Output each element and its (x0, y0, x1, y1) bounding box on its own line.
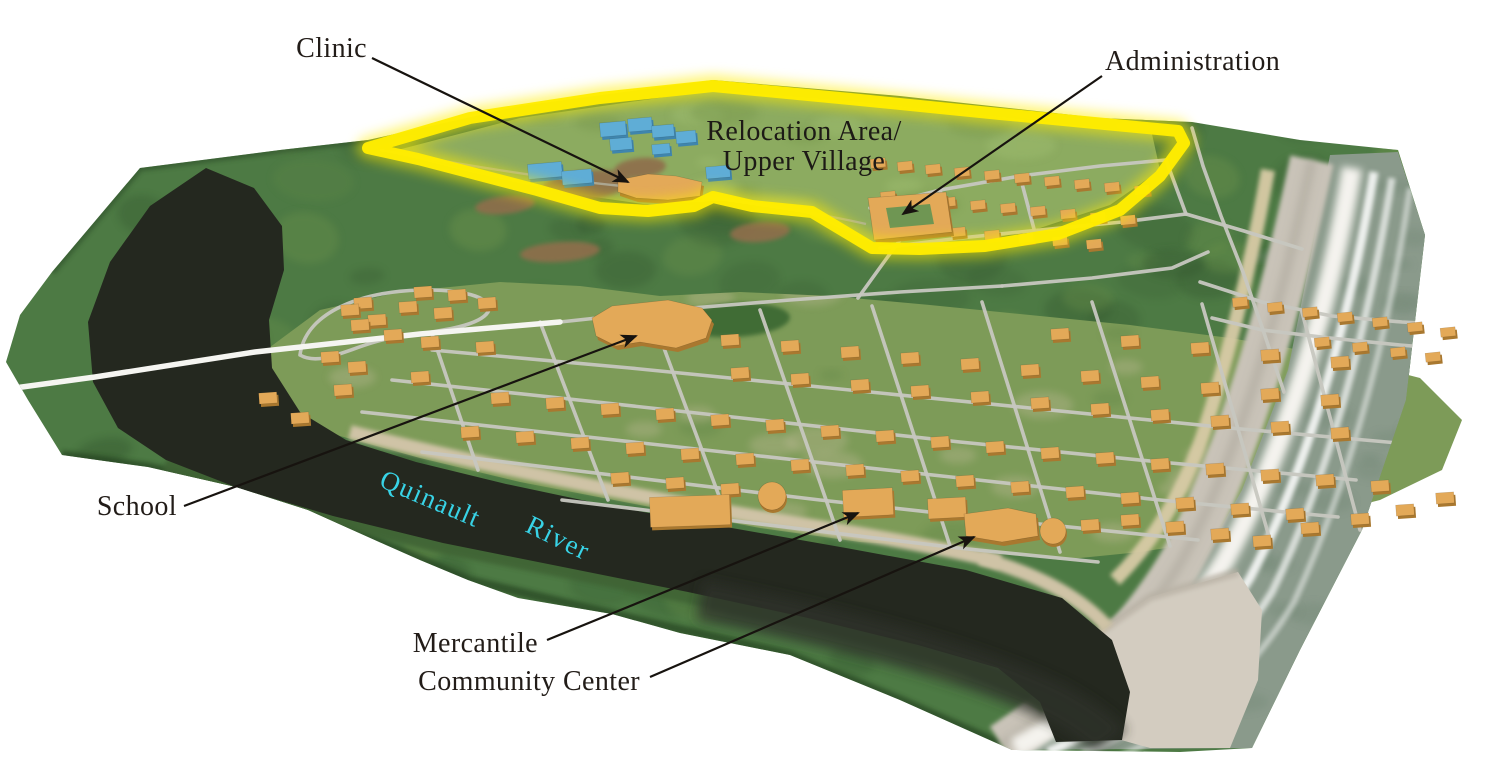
building (711, 414, 731, 429)
building (399, 301, 419, 316)
building (731, 367, 751, 382)
building (876, 430, 896, 445)
building (986, 441, 1006, 456)
building (1271, 421, 1291, 436)
building (791, 459, 811, 474)
building (1396, 504, 1416, 519)
building (897, 161, 915, 175)
building (901, 352, 921, 367)
building (652, 143, 673, 158)
building (1211, 415, 1231, 430)
building (846, 464, 866, 479)
building (1371, 480, 1391, 495)
taholah-3d-terrain-map: Clinic Administration School Mercantile … (0, 0, 1500, 758)
building (656, 408, 676, 423)
building (1261, 388, 1281, 403)
building (1041, 447, 1061, 462)
building (1301, 522, 1321, 537)
building (1081, 370, 1101, 385)
building (1031, 397, 1051, 412)
building (721, 334, 741, 349)
building (411, 371, 431, 386)
building (1081, 519, 1101, 534)
building (1372, 317, 1390, 331)
building (1267, 302, 1285, 316)
label-community-center: Community Center (418, 666, 640, 697)
building (911, 385, 931, 400)
building (650, 495, 733, 531)
building (652, 124, 677, 141)
building (1425, 352, 1443, 366)
building (351, 319, 371, 334)
building (1141, 376, 1161, 391)
building (561, 169, 594, 189)
building (1096, 452, 1116, 467)
building (821, 425, 841, 440)
building (1051, 328, 1071, 343)
building (516, 431, 536, 446)
building (970, 200, 988, 214)
building (925, 164, 943, 178)
building (1440, 327, 1458, 341)
building (599, 121, 628, 140)
building (931, 436, 951, 451)
building (1331, 356, 1351, 371)
label-administration: Administration (1105, 46, 1280, 77)
building (676, 130, 699, 147)
building (610, 137, 635, 154)
building (1030, 206, 1048, 220)
building (434, 307, 454, 322)
building (611, 472, 631, 487)
building (1352, 342, 1370, 356)
building (1091, 403, 1111, 418)
label-upper-village: Upper Village (723, 146, 885, 177)
building (1000, 203, 1018, 217)
label-school: School (97, 491, 177, 522)
label-clinic: Clinic (296, 33, 367, 64)
building (1021, 364, 1041, 379)
building (421, 336, 441, 351)
building (414, 286, 434, 301)
building (681, 448, 701, 463)
building (1286, 508, 1306, 523)
building (334, 384, 354, 399)
building (1351, 513, 1371, 528)
building (1231, 503, 1251, 518)
building (851, 379, 871, 394)
building (627, 117, 654, 135)
building (1321, 394, 1341, 409)
building (1104, 182, 1122, 196)
building (1253, 535, 1273, 550)
building (1407, 322, 1425, 336)
building (1151, 409, 1171, 424)
building (384, 329, 404, 344)
building (1206, 463, 1226, 478)
building (791, 373, 811, 388)
building (1261, 469, 1281, 484)
building (1331, 427, 1351, 442)
building (1066, 486, 1086, 501)
building (1201, 382, 1221, 397)
building (1390, 347, 1408, 361)
building (1166, 521, 1186, 536)
building (368, 314, 388, 329)
building (321, 351, 341, 366)
building (1011, 481, 1031, 496)
building (476, 341, 496, 356)
building (971, 391, 991, 406)
building (901, 470, 921, 485)
building (1316, 474, 1336, 489)
building (1436, 492, 1456, 507)
building (1074, 179, 1092, 193)
building (341, 304, 361, 319)
building (1086, 239, 1104, 253)
building (491, 392, 511, 407)
building (1191, 342, 1211, 357)
building (956, 475, 976, 490)
building (961, 358, 981, 373)
building (259, 392, 279, 407)
building (1211, 528, 1231, 543)
building (1121, 514, 1141, 529)
building (766, 419, 786, 434)
building (781, 340, 801, 355)
building (546, 397, 566, 412)
building (928, 497, 969, 522)
building (1044, 176, 1062, 190)
building (1121, 492, 1141, 507)
building (1121, 335, 1141, 350)
building (1314, 337, 1332, 351)
building (348, 361, 368, 376)
building (1261, 349, 1281, 364)
building (1176, 497, 1196, 512)
building (1302, 307, 1320, 321)
map-figure: Clinic Administration School Mercantile … (0, 0, 1500, 758)
building (1014, 173, 1032, 187)
building (666, 477, 686, 492)
building (601, 403, 621, 418)
label-mercantile: Mercantile (413, 628, 538, 659)
building (1337, 312, 1355, 326)
building (291, 412, 311, 427)
building (984, 170, 1002, 184)
building (626, 442, 646, 457)
building (448, 289, 468, 304)
building (1232, 297, 1250, 311)
building (736, 453, 756, 468)
building (461, 426, 481, 441)
building (571, 437, 591, 452)
label-relocation-area: Relocation Area/ (706, 116, 901, 147)
building (1151, 458, 1171, 473)
building (478, 297, 498, 312)
building (841, 346, 861, 361)
